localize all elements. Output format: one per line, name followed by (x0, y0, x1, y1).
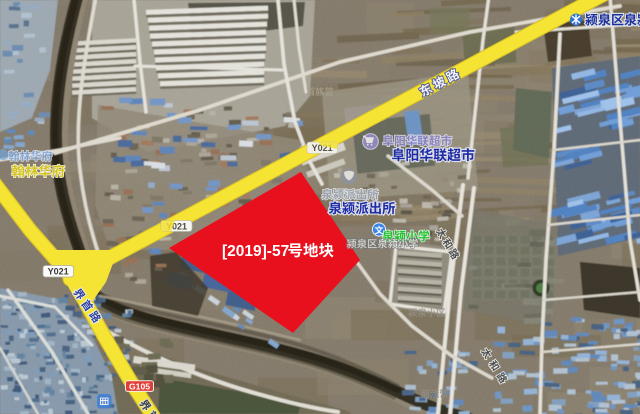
svg-text:Y021: Y021 (48, 267, 69, 277)
svg-text:G105: G105 (129, 381, 150, 391)
svg-text:[2019]-57: [2019]-57 (222, 243, 289, 260)
